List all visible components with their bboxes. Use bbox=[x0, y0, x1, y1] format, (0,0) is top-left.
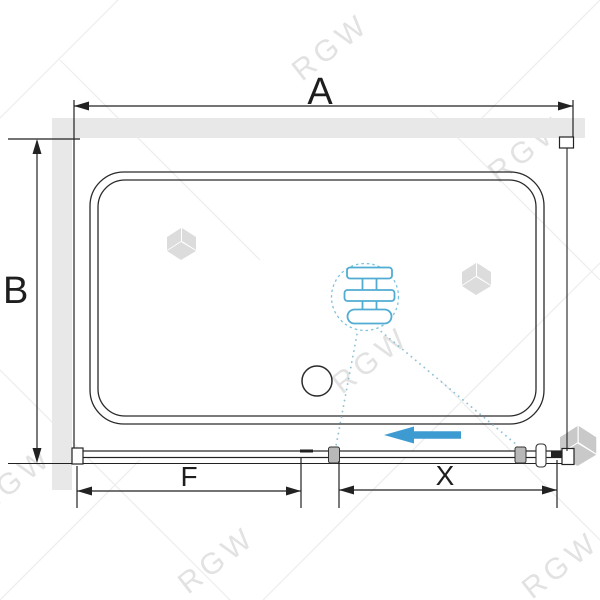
shower-door-diagram: RGW RGW RGW RGW RGW RGW bbox=[0, 0, 600, 600]
watermark-text: RGW bbox=[516, 525, 600, 600]
label-dimension-A: A bbox=[307, 71, 333, 113]
roller-mid-bar bbox=[345, 290, 395, 301]
door-assembly bbox=[8, 137, 574, 467]
door-guide-bracket bbox=[536, 444, 546, 467]
tray-outer-edge bbox=[90, 172, 544, 424]
watermark-text: RGW bbox=[326, 320, 416, 400]
glass-panel-bar bbox=[75, 451, 572, 458]
wall-profile-top-right bbox=[560, 137, 574, 148]
door-handle-knob bbox=[551, 451, 562, 458]
arrowhead-up-icon bbox=[33, 139, 42, 154]
arrowhead-right-icon bbox=[558, 102, 573, 111]
drain-icon bbox=[302, 366, 332, 396]
wall-profile-bottom-right bbox=[562, 449, 574, 465]
roller-bracket-left bbox=[329, 447, 340, 463]
label-dimension-F: F bbox=[180, 461, 197, 492]
roller-wheel-capsule bbox=[348, 310, 392, 324]
watermark-text: RGW bbox=[0, 440, 59, 520]
label-dimension-B: B bbox=[3, 270, 28, 312]
arrowhead-left-icon bbox=[339, 486, 354, 495]
panel-stopper bbox=[300, 450, 313, 453]
tray-inner-edge bbox=[98, 180, 536, 416]
left-wall bbox=[52, 118, 72, 490]
rgw-cube-icon bbox=[167, 228, 196, 260]
shower-tray bbox=[90, 172, 544, 424]
arrowhead-right-icon bbox=[286, 487, 301, 496]
wall-profile-left bbox=[72, 448, 83, 464]
arrowhead-left-icon bbox=[77, 487, 92, 496]
arrowhead-right-icon bbox=[542, 486, 557, 495]
roller-assembly-icon bbox=[345, 268, 395, 324]
diagram-svg: RGW RGW RGW RGW RGW RGW bbox=[0, 0, 600, 600]
arrowhead-left-icon bbox=[74, 102, 89, 111]
top-wall bbox=[52, 118, 585, 138]
roller-top-bar bbox=[347, 268, 392, 279]
rgw-cube-icon bbox=[462, 263, 491, 295]
label-dimension-X: X bbox=[436, 460, 455, 491]
roller-bracket-right bbox=[515, 447, 526, 463]
watermark-text: RGW bbox=[172, 520, 262, 600]
